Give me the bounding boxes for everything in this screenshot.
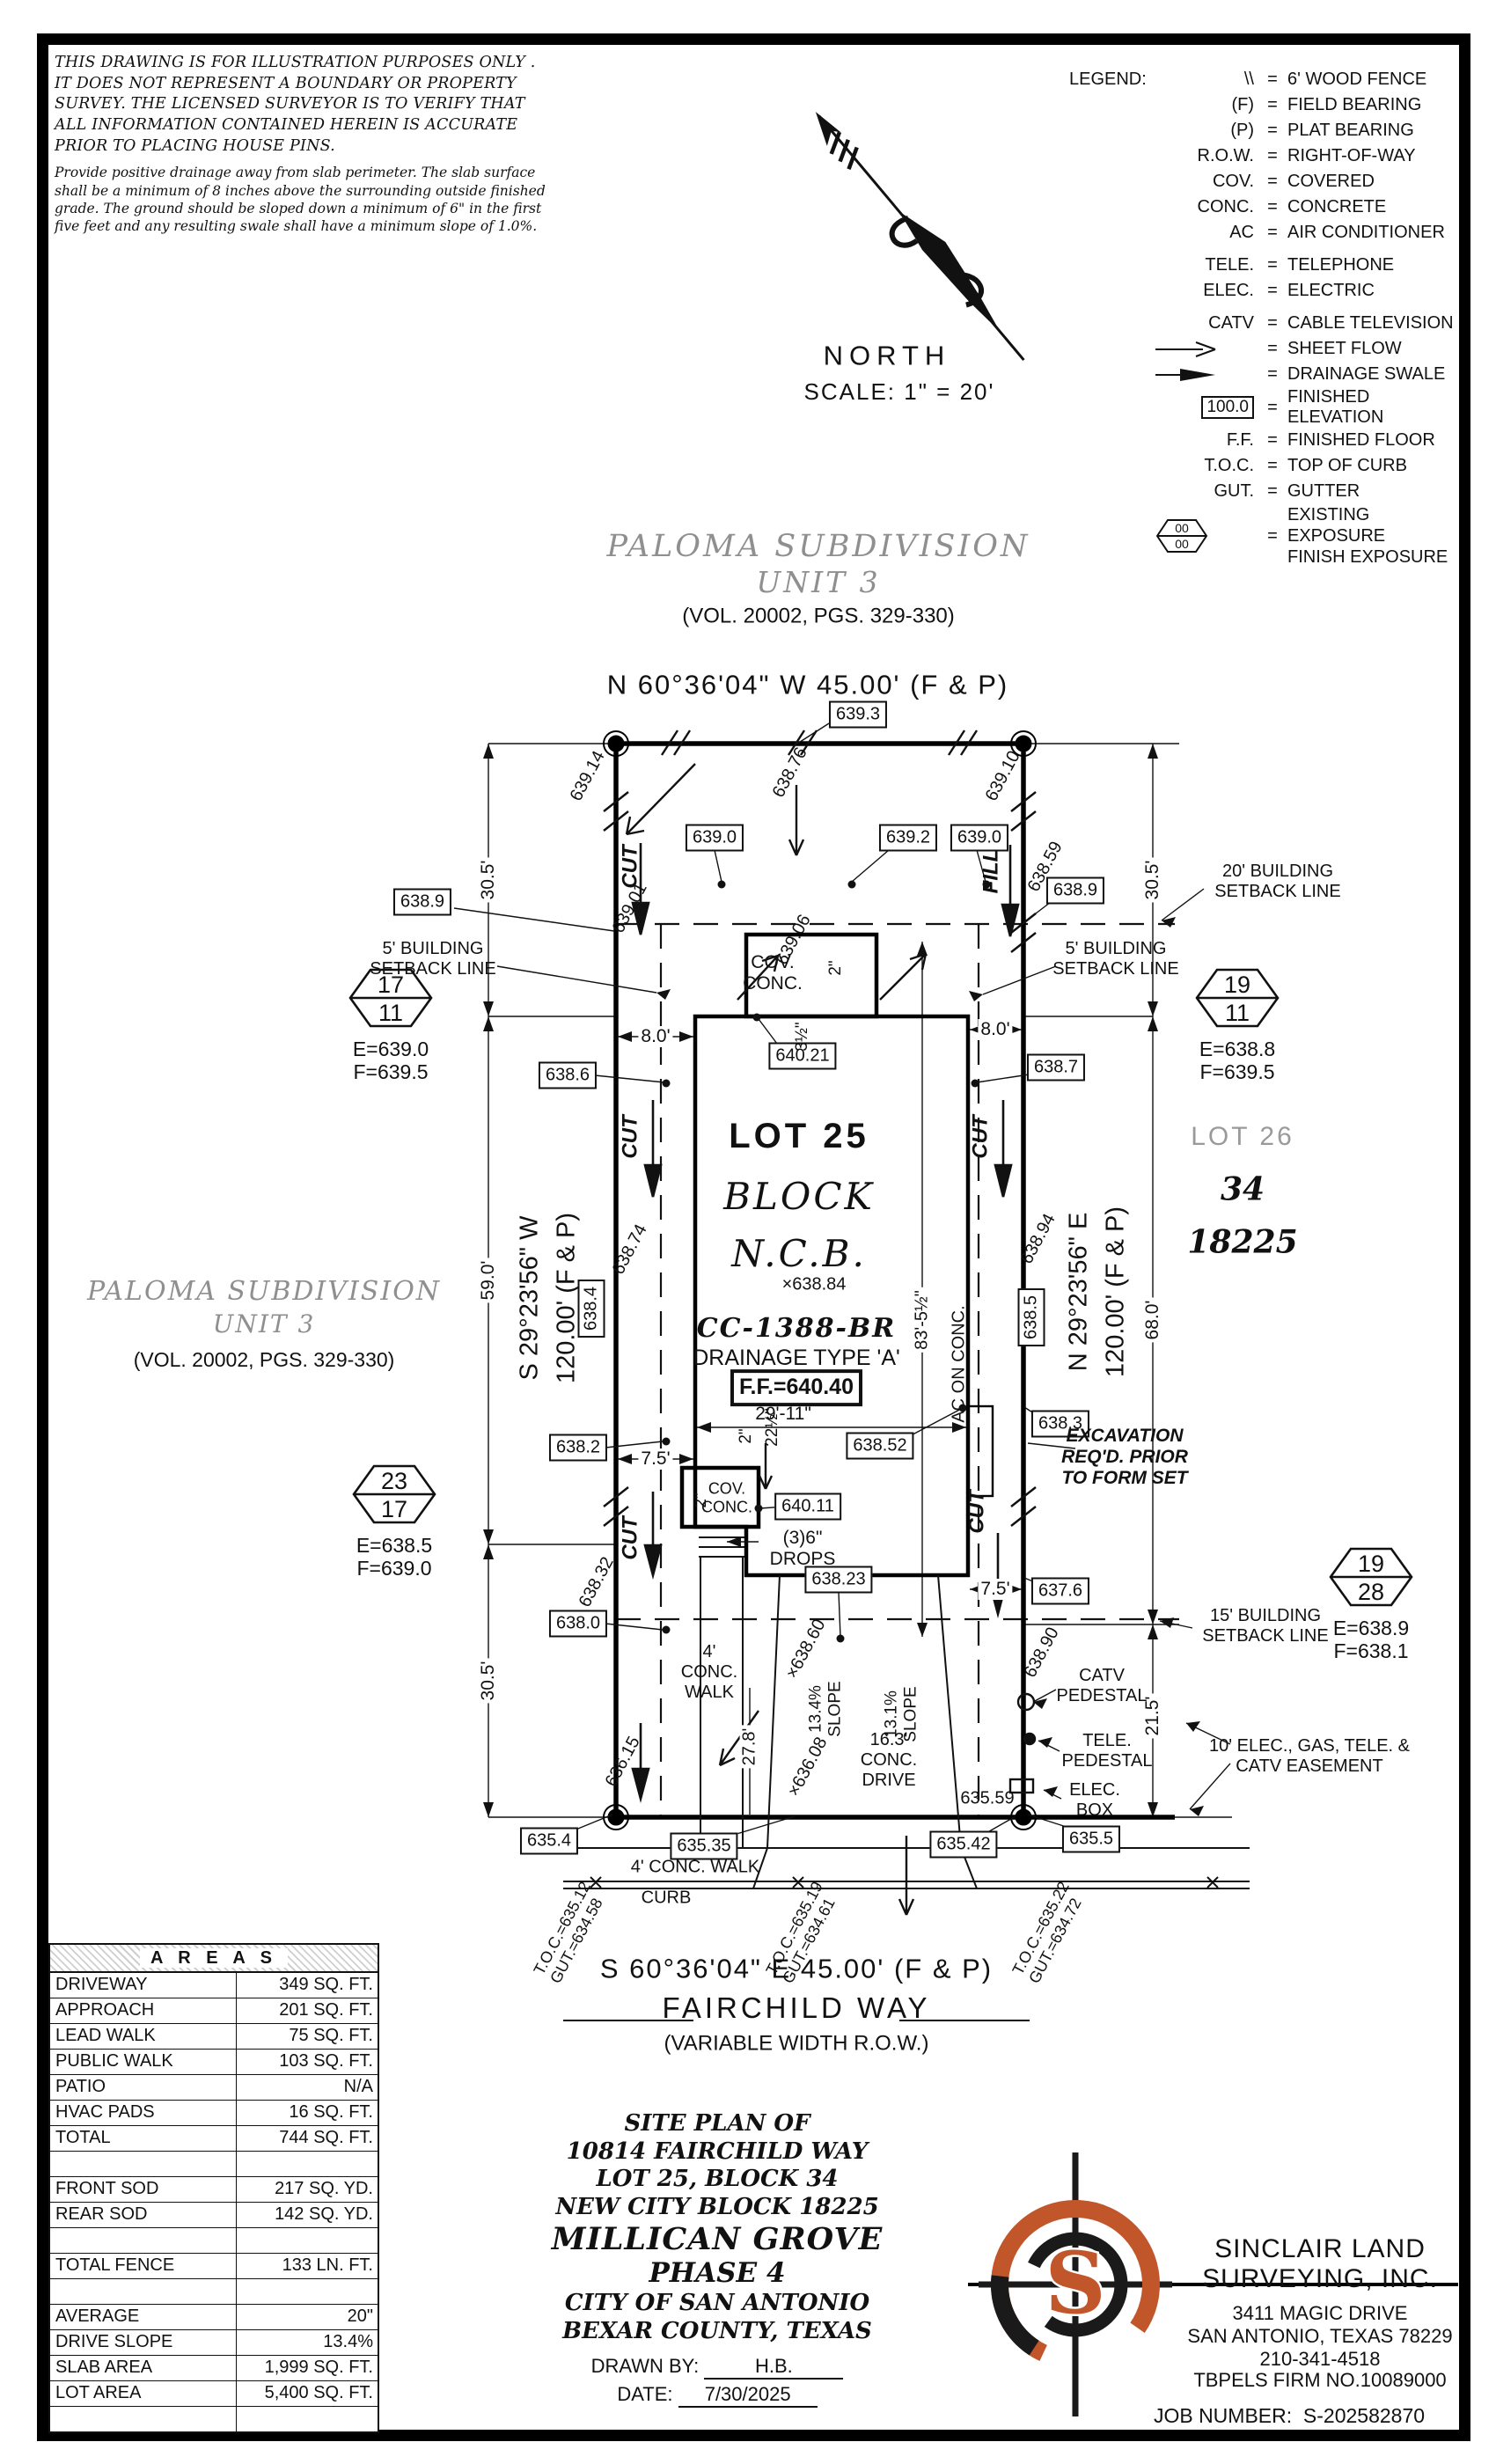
drawn-by-value: H.B. [704,2355,843,2380]
elevation-box: 638.9 [393,889,451,916]
subdivision-name-top: PALOMA SUBDIVISION [606,530,1030,565]
lot-number: LOT 25 [729,1117,869,1157]
cut-label: CUT [618,1516,642,1559]
elevation-box: 635.5 [1062,1826,1120,1853]
existing-exposure: E=638.8 [1199,1038,1275,1060]
elevation-box: 635.4 [520,1828,578,1855]
drawn-by-row: DRAWN BY: H.B. [519,2355,915,2380]
legend-title: LEGEND: [1069,70,1154,90]
subdivision-vol-top: (VOL. 20002, PGS. 329-330) [682,604,955,627]
cut-label: CUT [618,1115,642,1158]
existing-exposure: E=639.0 [353,1038,429,1060]
elevation-box: 640.11 [774,1493,841,1521]
conc-walk-label: 4' CONC. WALK [631,1858,759,1878]
slope-label: 13.4% SLOPE [806,1680,844,1738]
exposure-hex-icon: 00 00 [1154,515,1258,557]
block-word: BLOCK [723,1176,875,1218]
job-number-value: S-202582870 [1303,2404,1425,2427]
spot-elevation: ×638.84 [782,1275,847,1295]
setback-label-5-right: 5' BUILDING SETBACK LINE [1037,939,1195,979]
cut-label: CUT [968,1115,992,1158]
subdivision-name-left: PALOMA SUBDIVISION [87,1277,441,1307]
svg-text:S: S [1045,2233,1105,2333]
disclaimer-note: THIS DRAWING IS FOR ILLUSTRATION PURPOSE… [55,53,552,236]
dim-label: 7.5' [638,1448,672,1470]
cut-label: CUT [964,1490,988,1533]
subdivision-unit-top: UNIT 3 [756,566,880,599]
excavation-note: EXCAVATION REQ'D. PRIOR TO FORM SET [1050,1426,1199,1489]
adjacent-lot-label: LOT 26 [1191,1122,1294,1152]
dim-label: 22½" [763,1408,782,1447]
plan-code: CC-1388-BR [697,1314,896,1344]
legend-abbr: \\ [1154,70,1258,90]
legend: LEGEND:\\=6' WOOD FENCE (F)=FIELD BEARIN… [1069,67,1461,568]
dim-label: 68.0' [1142,1298,1163,1343]
drops-label: (3)6" DROPS [754,1528,851,1570]
legend-label: 6' WOOD FENCE [1287,70,1461,90]
elevation-box: 638.4 [578,1280,605,1338]
dim-label: 30.5' [478,1659,499,1704]
title-county: BEXAR COUNTY, TEXAS [519,2318,915,2346]
sinclair-logo-icon: S [979,2152,1172,2416]
elevation-box: 639.0 [950,825,1008,852]
north-label: NORTH [824,340,951,370]
spot-elevation: 635.59 [960,1789,1014,1809]
svg-text:19: 19 [1358,1551,1384,1577]
svg-text:23: 23 [381,1468,407,1494]
dim-label: 7.5' [978,1579,1012,1600]
street-row-note: (VARIABLE WIDTH R.O.W.) [664,2031,929,2055]
svg-text:17: 17 [381,1496,407,1522]
elevation-box: 635.42 [929,1831,997,1859]
covered-concrete-label: COV. CONC. [733,952,812,994]
date-row: DATE: 7/30/2025 [519,2383,915,2408]
elevation-box: 638.23 [804,1566,872,1594]
house-depth-dim: 83'-5½" [913,1287,933,1353]
elevation-box: 639.3 [829,701,887,729]
dim-label: 3½" [793,1022,812,1051]
tele-pedestal-icon [1024,1734,1035,1744]
existing-exposure: E=638.5 [356,1534,432,1557]
svg-text:11: 11 [378,1000,403,1026]
finish-exposure: F=639.5 [1199,1060,1274,1083]
hex-marker: 19 11 [1197,970,1278,1026]
svg-text:28: 28 [1358,1579,1384,1605]
dim-label: 30.5' [478,858,499,903]
elevation-box: 639.2 [879,825,937,852]
hex-marker: 23 17 [354,1466,435,1522]
elevation-box: 638.7 [1027,1054,1085,1082]
svg-text:00: 00 [1175,521,1189,535]
title-phase: PHASE 4 [519,2257,915,2290]
setback-label-15: 15' BUILDING SETBACK LINE [1177,1606,1353,1646]
disclaimer-paragraph: THIS DRAWING IS FOR ILLUSTRATION PURPOSE… [55,53,552,157]
company-phone: 210-341-4518 [1179,2348,1461,2372]
title-line: LOT 25, BLOCK 34 [519,2166,915,2194]
date-value: 7/30/2025 [678,2383,818,2408]
street-name: FAIRCHILD WAY [662,1991,930,2025]
company-firm-number: TBPELS FIRM NO.10089000 [1179,2369,1461,2393]
elevation-box: 637.6 [1031,1578,1089,1605]
elevation-box: 638.0 [549,1610,607,1638]
curb-label: CURB [642,1888,692,1909]
site-plan-sheet: 17 11 19 11 23 17 19 28 [0,0,1496,2464]
drainage-note-paragraph: Provide positive drainage away from slab… [55,164,552,236]
company-address2: SAN ANTONIO, TEXAS 78229 [1179,2325,1461,2349]
svg-text:11: 11 [1225,1000,1250,1026]
dim-label: 59.0' [478,1258,499,1303]
north-arrow-icon [798,102,1036,375]
bearing-east-dir: N 29°23'56" E [1064,1213,1093,1372]
adjacent-ncb-number: 18225 [1187,1224,1297,1260]
svg-text:19: 19 [1224,972,1250,998]
scale-label: SCALE: 1" = 20' [804,379,995,406]
ncb-word: N.C.B. [731,1233,867,1275]
tele-pedestal-label: TELE. PEDESTAL [1059,1731,1155,1771]
title-line: 10814 FAIRCHILD WAY [519,2138,915,2167]
bearing-west-dir: S 29°23'56" W [515,1215,544,1380]
adjacent-block-number: 34 [1221,1171,1265,1207]
subdivision-unit-left: UNIT 3 [213,1310,316,1338]
title-city: CITY OF SAN ANTONIO [519,2290,915,2318]
ac-pad-label: AC ON CONC. [950,1305,970,1422]
catv-pedestal-icon [1018,1694,1034,1710]
slope-label: 13.1% SLOPE [882,1685,920,1743]
elevation-box: 638.52 [846,1433,913,1460]
title-line: SITE PLAN OF [519,2110,915,2138]
title-project: MILLICAN GROVE [519,2222,915,2257]
dim-label: 8.0' [638,1026,672,1047]
areas-table: A R E A S DRIVEWAY349 SQ. FT. APPROACH20… [48,1943,379,2433]
elec-box-label: ELEC. BOX [1064,1780,1126,1821]
company-name-line2: SURVEYING, INC. [1179,2263,1461,2295]
easement-label: 10' ELEC., GAS, TELE. & CATV EASEMENT [1199,1736,1419,1777]
hex-marker: 19 28 [1331,1549,1412,1605]
job-number-row: JOB NUMBER: S-202582870 [1118,2404,1461,2428]
dim-label: 2" [826,960,846,975]
covered-concrete-label: COV. CONC. [693,1479,760,1515]
catv-pedestal-label: CATV PEDESTAL [1053,1666,1150,1706]
elevation-box: 638.9 [1046,877,1104,905]
elevation-box: 638.6 [539,1062,597,1089]
sheet-flow-icon [1154,341,1258,358]
finish-exposure: F=639.5 [353,1060,428,1083]
title-block: SITE PLAN OF 10814 FAIRCHILD WAY LOT 25,… [519,2110,915,2408]
bearing-east-len: 120.00' (F & P) [1101,1206,1130,1377]
dim-label: 2" [737,1428,756,1443]
finished-elevation-symbol: 100.0 [1201,396,1254,419]
elevation-box: 638.2 [549,1434,607,1462]
elevation-box: 635.35 [670,1833,737,1860]
company-name-line1: SINCLAIR LAND [1179,2233,1461,2265]
dim-label: 8.0' [978,1019,1012,1040]
finish-exposure: F=639.0 [356,1557,431,1580]
conc-walk-label: 4' CONC. WALK [678,1642,740,1702]
cut-label: CUT [618,845,642,888]
fill-label: FILL [979,849,1002,894]
setback-label-20: 20' BUILDING SETBACK LINE [1190,862,1366,902]
drainage-type: DRAINAGE TYPE 'A' [693,1346,900,1371]
setback-label-5-left: 5' BUILDING SETBACK LINE [354,939,512,979]
elevation-box: 638.5 [1018,1288,1045,1346]
svg-text:00: 00 [1175,537,1189,551]
finished-floor-value: F.F.=640.40 [730,1369,862,1406]
dim-label: 30.5' [1142,858,1163,903]
elevation-box: 639.0 [686,825,744,852]
title-line: NEW CITY BLOCK 18225 [519,2194,915,2222]
dim-label: 27.8' [740,1726,760,1769]
bearing-north: N 60°36'04" W 45.00' (F & P) [607,669,1009,700]
subdivision-vol-left: (VOL. 20002, PGS. 329-330) [134,1348,395,1371]
areas-table-title: A R E A S [50,1945,378,1973]
company-address1: 3411 MAGIC DRIVE [1179,2302,1461,2326]
drainage-swale-icon [1154,366,1258,384]
